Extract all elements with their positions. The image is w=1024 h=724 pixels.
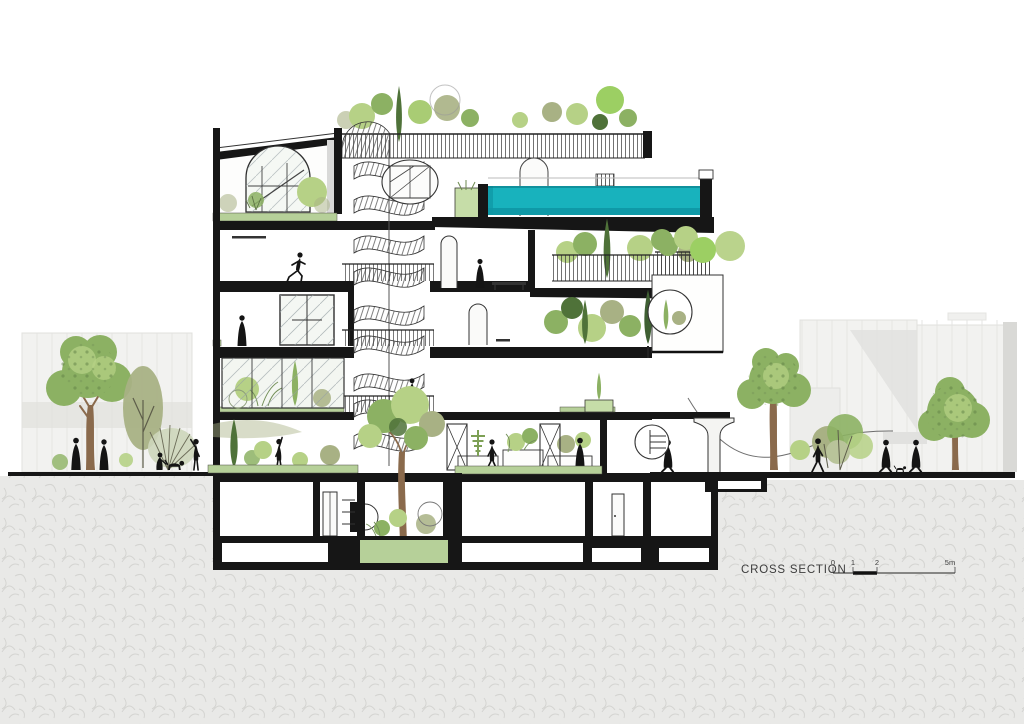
pool-planter bbox=[455, 188, 481, 218]
right-volume bbox=[648, 226, 723, 352]
arch-door bbox=[441, 236, 457, 288]
rooftop-pool bbox=[432, 158, 714, 233]
bush bbox=[119, 453, 133, 467]
bush bbox=[52, 454, 68, 470]
big-window bbox=[280, 295, 334, 345]
scale-tick-5m: 5m bbox=[945, 558, 955, 567]
ellipse-window bbox=[382, 160, 438, 204]
planter-boxes bbox=[458, 428, 592, 470]
scale-tick-0: 0 bbox=[831, 558, 835, 567]
penthouse bbox=[213, 128, 342, 221]
roof-vent bbox=[596, 174, 614, 186]
scale-tick-1: 1 bbox=[851, 558, 855, 567]
indoor-plant bbox=[248, 192, 264, 208]
arch-door bbox=[469, 304, 487, 345]
planter-box bbox=[585, 400, 613, 412]
x-brace-door bbox=[447, 424, 467, 470]
round-slat-window bbox=[635, 425, 669, 459]
architectural-section-sheet: CROSS SECTION 0 1 2 5m bbox=[0, 0, 1024, 724]
ground-earth bbox=[0, 476, 1024, 724]
left-wall bbox=[213, 128, 220, 570]
basement-door bbox=[612, 494, 624, 536]
foundation bbox=[213, 536, 718, 570]
scale-tick-2: 2 bbox=[875, 558, 879, 567]
pool-deck-slab bbox=[432, 217, 714, 233]
small-tree bbox=[790, 440, 810, 460]
winter-garden bbox=[222, 358, 344, 408]
porthole-planter bbox=[648, 290, 692, 334]
basement bbox=[213, 473, 718, 570]
pool-rim bbox=[700, 179, 712, 218]
